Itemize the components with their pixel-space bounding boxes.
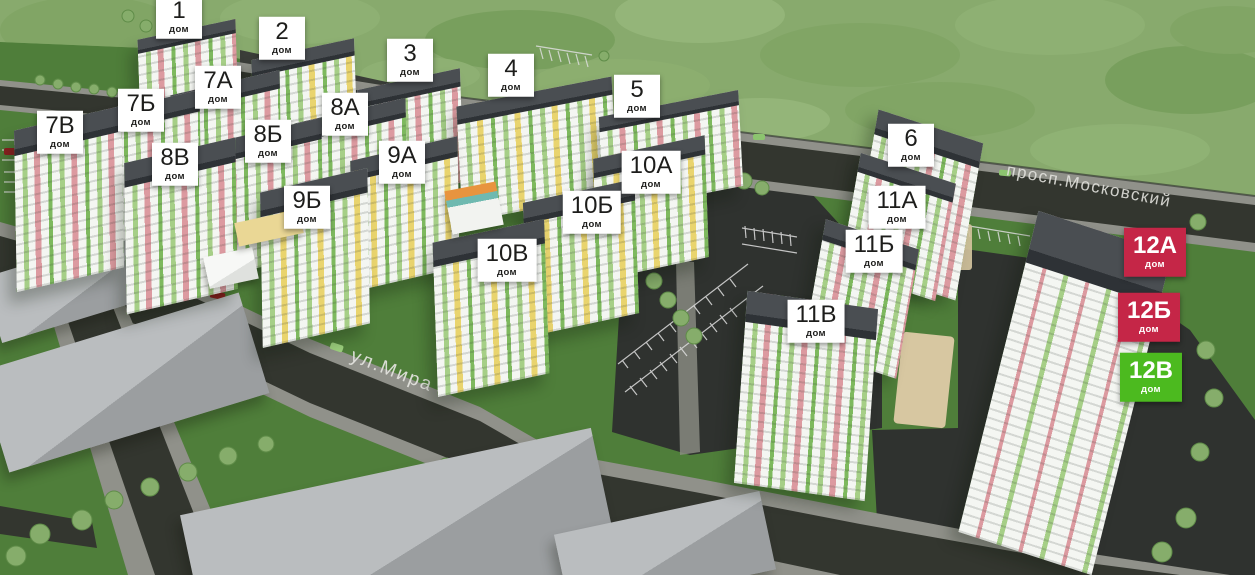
house-label-7a[interactable]: 7Адом (195, 66, 241, 109)
house-type: дом (164, 25, 194, 35)
house-type: дом (1133, 260, 1177, 270)
house-number: 1 (164, 0, 194, 23)
house-label-12b[interactable]: 12Бдом (1118, 293, 1180, 342)
house-type: дом (253, 149, 283, 159)
house-label-9a[interactable]: 9Адом (379, 141, 425, 184)
house-number: 8В (160, 146, 190, 170)
house-number: 10В (486, 242, 529, 266)
house-number: 12Б (1127, 299, 1171, 323)
house-label-11a[interactable]: 11Адом (869, 186, 926, 229)
house-label-9b[interactable]: 9Бдом (284, 186, 330, 229)
house-number: 4 (496, 57, 526, 81)
house-type: дом (486, 268, 529, 278)
house-number: 10Б (571, 194, 613, 218)
house-label-8a[interactable]: 8Адом (322, 93, 368, 136)
house-number: 7В (45, 114, 75, 138)
house-type: дом (160, 172, 190, 182)
house-number: 9Б (292, 189, 322, 213)
house-number: 11В (796, 303, 837, 327)
house-label-10a[interactable]: 10Адом (622, 151, 681, 194)
house-label-2[interactable]: 2дом (259, 17, 305, 60)
house-label-10v[interactable]: 10Вдом (478, 239, 537, 282)
house-type: дом (395, 68, 425, 78)
house-number: 8Б (253, 123, 283, 147)
house-label-10b[interactable]: 10Бдом (563, 191, 621, 234)
house-number: 11А (877, 189, 918, 213)
house-type: дом (292, 215, 322, 225)
house-type: дом (45, 140, 75, 150)
house-number: 12А (1133, 234, 1177, 258)
house-type: дом (267, 46, 297, 56)
house-label-8v[interactable]: 8Вдом (152, 143, 198, 186)
green-car (753, 134, 765, 140)
house-type: дом (896, 153, 926, 163)
house-label-11b[interactable]: 11Бдом (846, 230, 903, 273)
house-number: 2 (267, 20, 297, 44)
house-label-11v[interactable]: 11Вдом (788, 300, 845, 343)
house-number: 10А (630, 154, 673, 178)
house-number: 9А (387, 144, 417, 168)
house-label-6[interactable]: 6дом (888, 124, 934, 167)
house-label-3[interactable]: 3дом (387, 39, 433, 82)
residential-complex-site-plan: ул.Мира просп.Московский 1дом 2дом 3дом … (0, 0, 1255, 575)
house-label-1[interactable]: 1дом (156, 0, 202, 38)
house-type: дом (571, 220, 613, 230)
house-type: дом (1129, 385, 1173, 395)
house-number: 7А (203, 69, 233, 93)
house-number: 6 (896, 127, 926, 151)
house-type: дом (622, 104, 652, 114)
house-type: дом (330, 122, 360, 132)
house-type: дом (1127, 325, 1171, 335)
house-type: дом (877, 215, 918, 225)
house-label-12v[interactable]: 12Вдом (1120, 353, 1182, 402)
house-number: 12В (1129, 359, 1173, 383)
house-label-8b[interactable]: 8Бдом (245, 120, 291, 163)
house-type: дом (496, 83, 526, 93)
house-label-7v[interactable]: 7Вдом (37, 111, 83, 154)
house-type: дом (796, 329, 837, 339)
house-label-12a[interactable]: 12Адом (1124, 228, 1186, 277)
house-number: 8А (330, 96, 360, 120)
house-type: дом (203, 95, 233, 105)
house-label-4[interactable]: 4дом (488, 54, 534, 97)
house-type: дом (126, 118, 156, 128)
house-type: дом (630, 180, 673, 190)
house-label-5[interactable]: 5дом (614, 75, 660, 118)
house-number: 5 (622, 78, 652, 102)
house-type: дом (854, 259, 895, 269)
house-number: 7Б (126, 92, 156, 116)
house-type: дом (387, 170, 417, 180)
house-label-7b[interactable]: 7Бдом (118, 89, 164, 132)
house-number: 11Б (854, 233, 895, 257)
house-number: 3 (395, 42, 425, 66)
